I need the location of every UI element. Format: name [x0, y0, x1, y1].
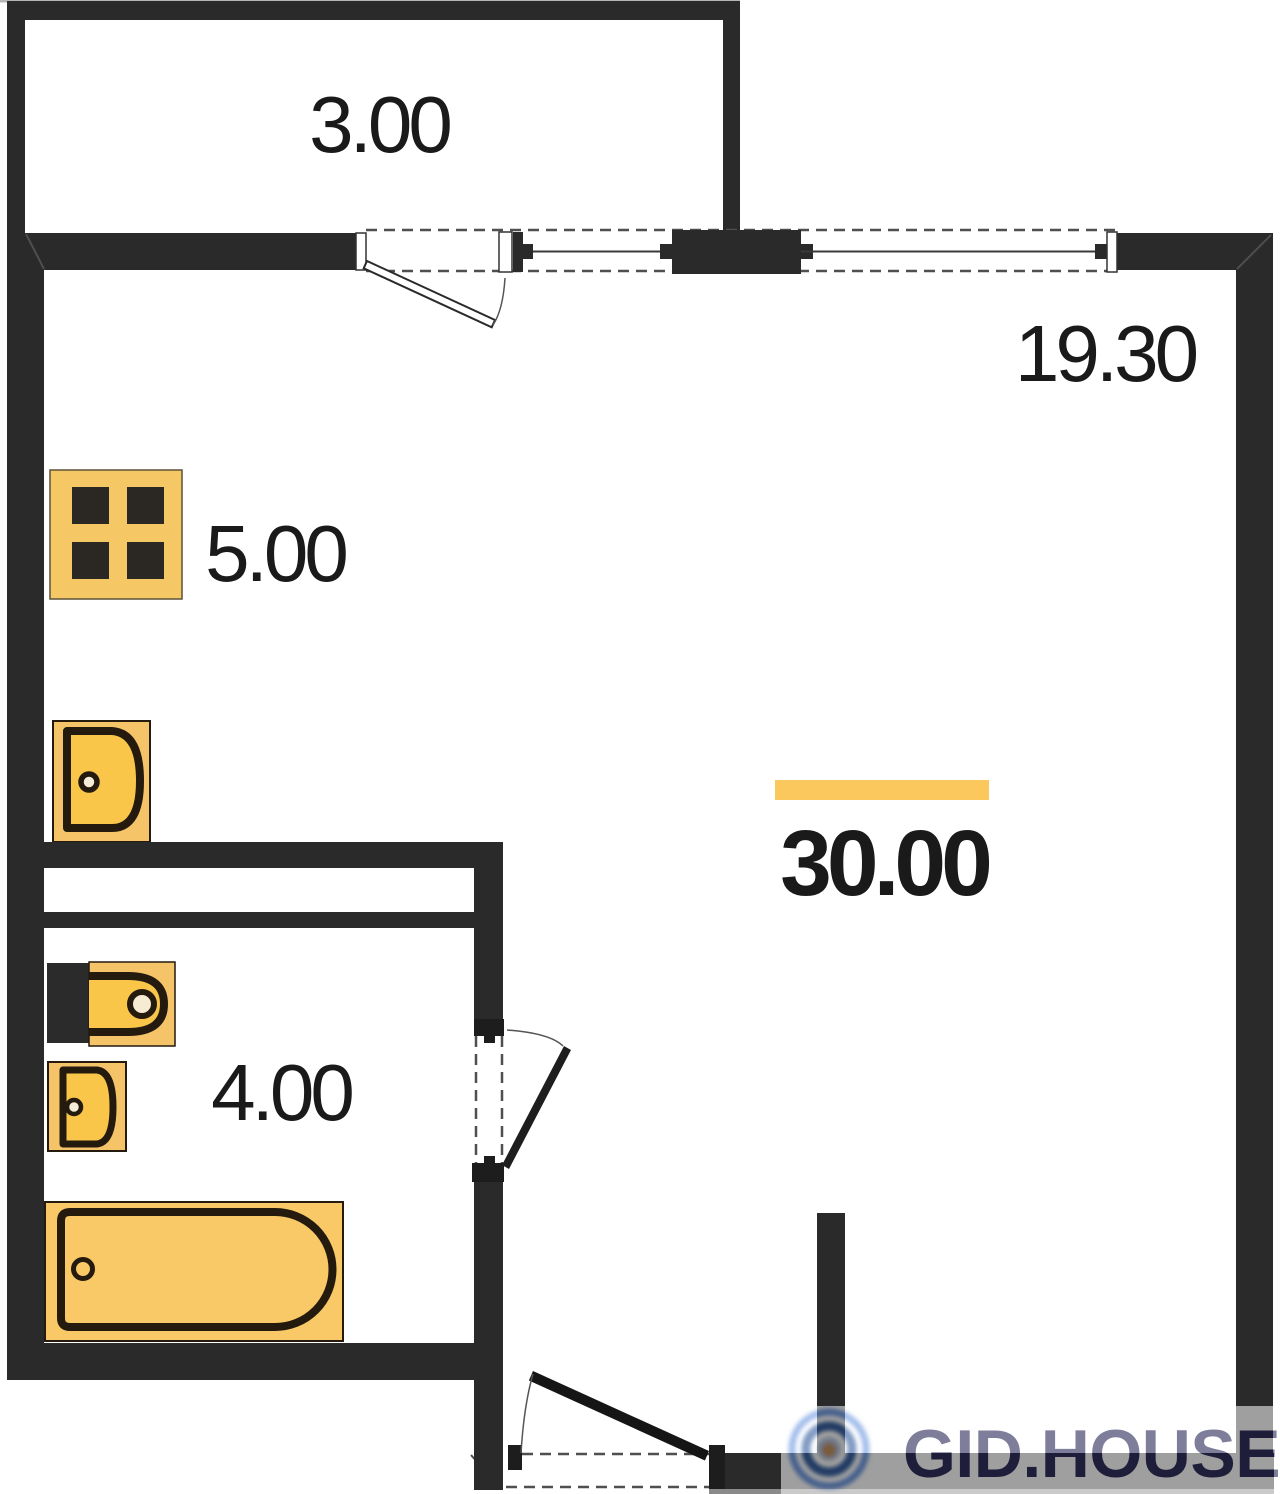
svg-text:30.00: 30.00	[780, 811, 989, 915]
svg-text:3.00: 3.00	[309, 80, 450, 169]
svg-text:GID.HOUSE: GID.HOUSE	[903, 1416, 1280, 1492]
svg-text:19.30: 19.30	[1015, 309, 1197, 398]
svg-text:5.00: 5.00	[205, 509, 346, 598]
svg-text:4.00: 4.00	[211, 1048, 352, 1137]
